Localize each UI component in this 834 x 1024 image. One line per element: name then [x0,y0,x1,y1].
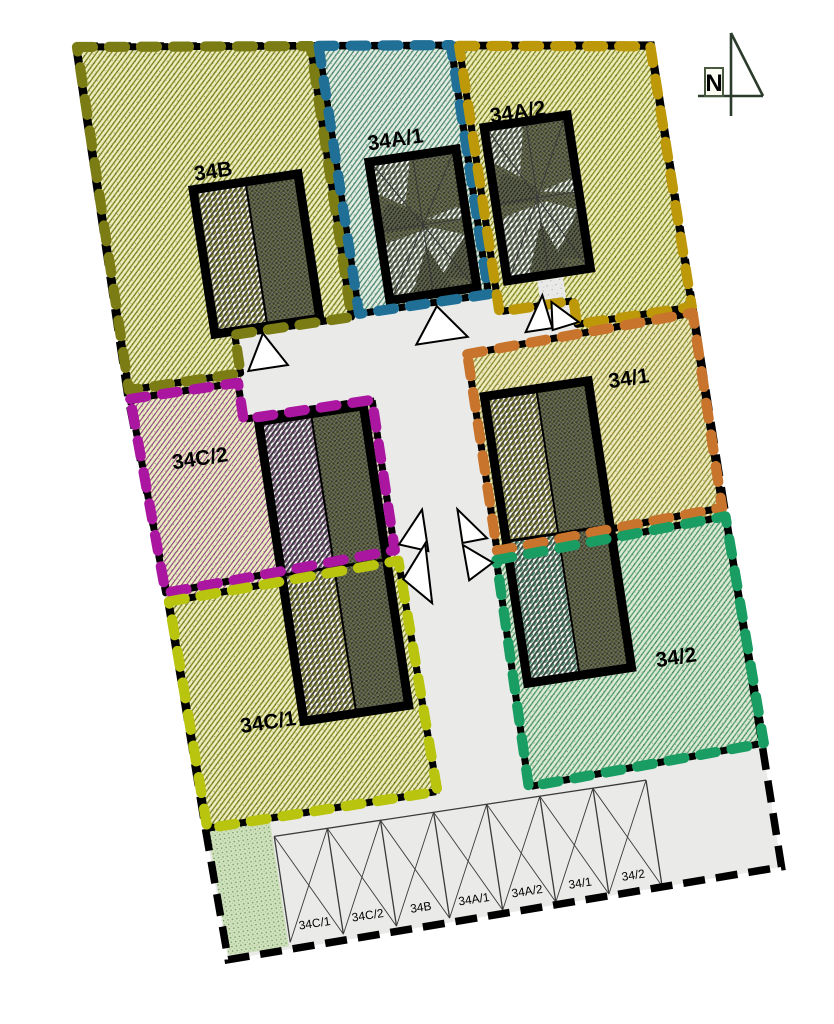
svg-text:N: N [705,70,722,97]
